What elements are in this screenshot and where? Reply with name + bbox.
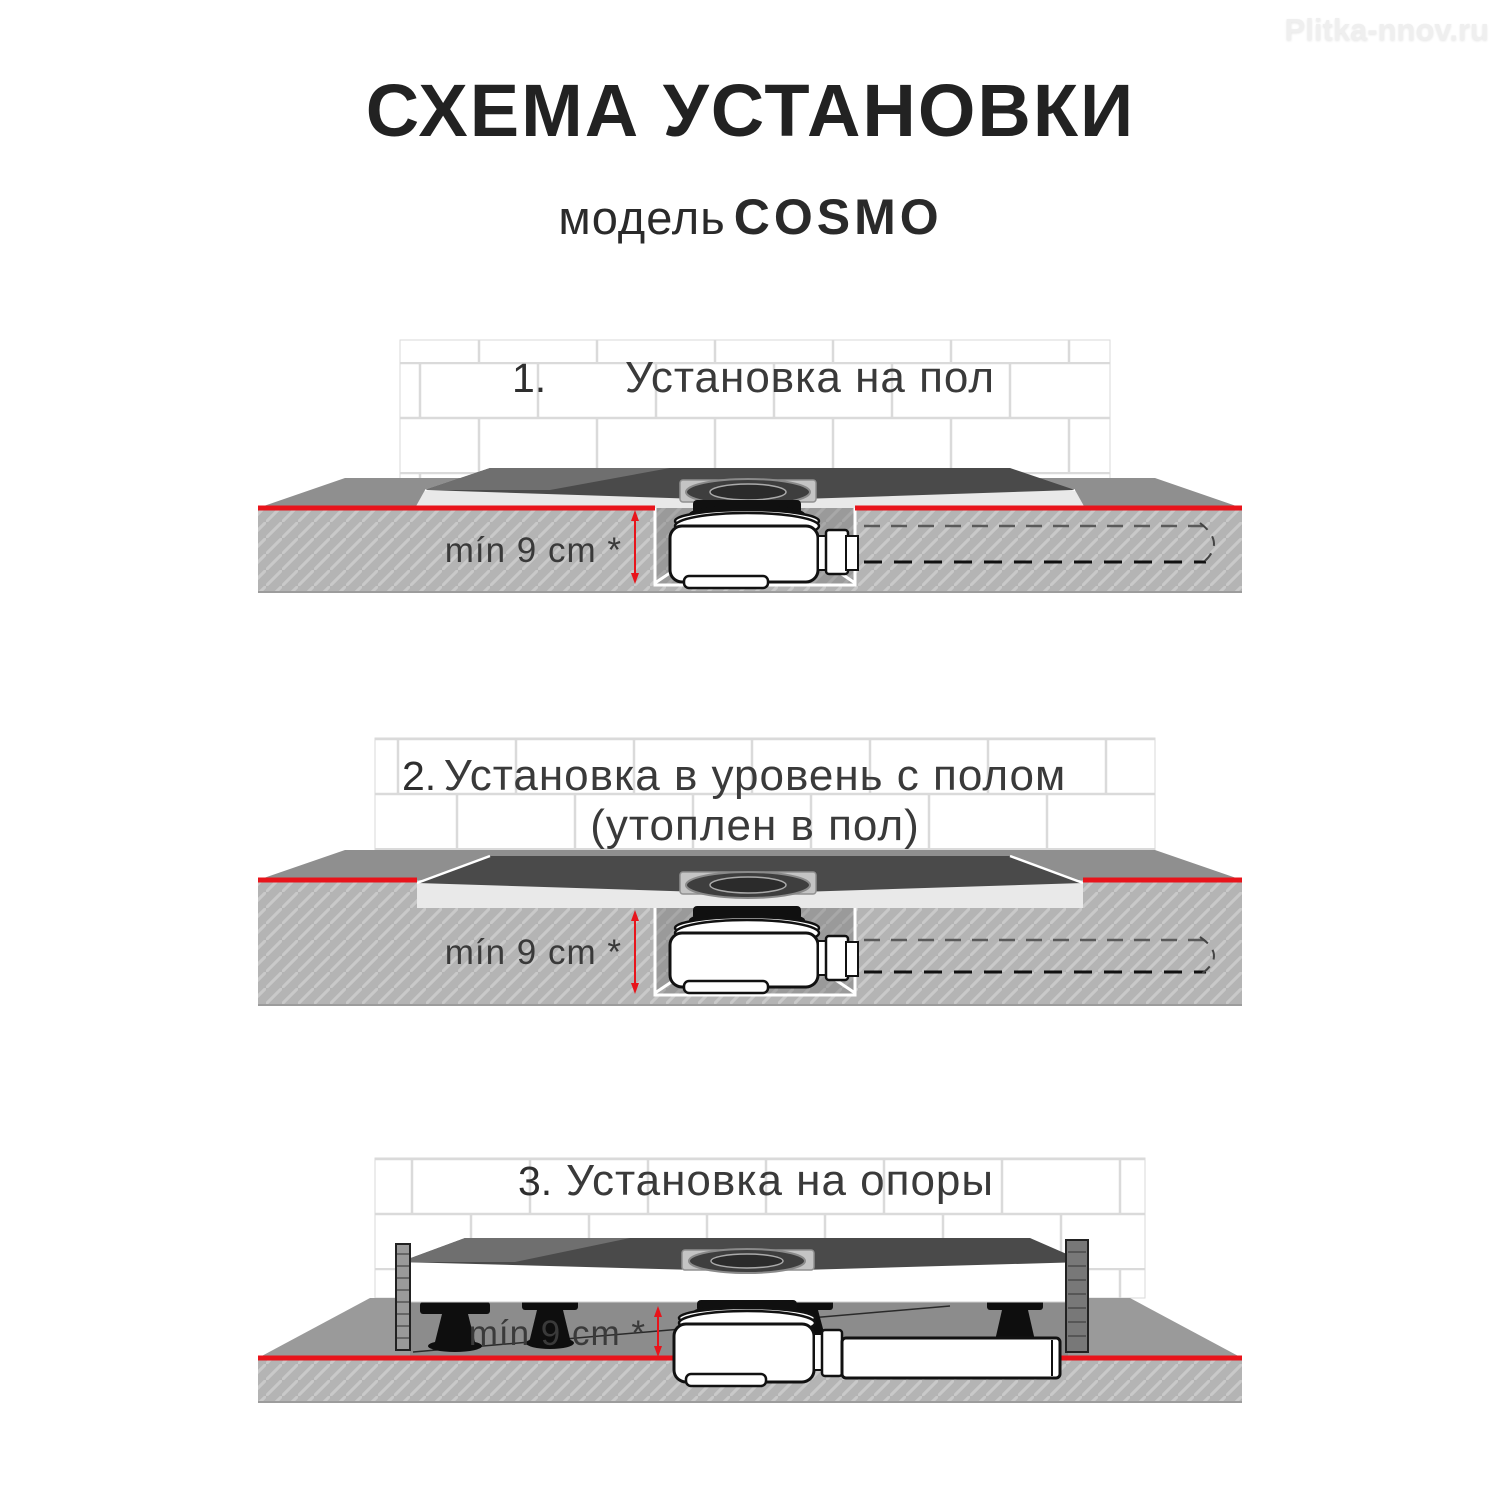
tiled-skirt-right — [1066, 1240, 1088, 1352]
figure2-title-line2: (утоплен в пол) — [590, 801, 920, 850]
figure2-title-line1: Установка в уровень с полом — [444, 751, 1066, 800]
figure3-drawing: 3. Установка на опоры — [250, 1140, 1251, 1440]
figure2-number: 2. — [402, 753, 436, 799]
figure1-drawing: 1. Установка на пол — [250, 330, 1251, 630]
figure2-dimension-label: mín 9 cm * — [445, 933, 622, 972]
installation-scheme-page: Plitka-nnov.ru СХЕМА УСТАНОВКИ модельCOS… — [0, 0, 1501, 1501]
drain-grate — [682, 1249, 814, 1273]
figure-installation-flush: 2. Установка в уровень с полом (утоплен … — [250, 700, 1251, 1030]
figure1-dimension-label: mín 9 cm * — [445, 531, 622, 570]
figure3-number: 3. — [518, 1158, 552, 1204]
model-name: COSMO — [734, 189, 943, 245]
page-title: СХЕМА УСТАНОВКИ — [0, 68, 1501, 153]
figure-installation-on-floor: 1. Установка на пол — [250, 330, 1251, 630]
figure3-dimension-label: mín 9 cm * — [469, 1314, 646, 1353]
figure1-title: Установка на пол — [625, 353, 995, 402]
watermark: Plitka-nnov.ru — [1285, 12, 1489, 48]
model-label: модель — [558, 191, 725, 244]
drain-grate — [680, 872, 816, 898]
figure3-title: Установка на опоры — [566, 1156, 994, 1205]
tiled-skirt-left — [396, 1244, 410, 1350]
page-subtitle: модельCOSMO — [0, 188, 1501, 246]
figure1-number: 1. — [512, 355, 546, 401]
figure-installation-on-supports: 3. Установка на опоры — [250, 1140, 1251, 1440]
figure2-drawing: 2. Установка в уровень с полом (утоплен … — [250, 700, 1251, 1030]
